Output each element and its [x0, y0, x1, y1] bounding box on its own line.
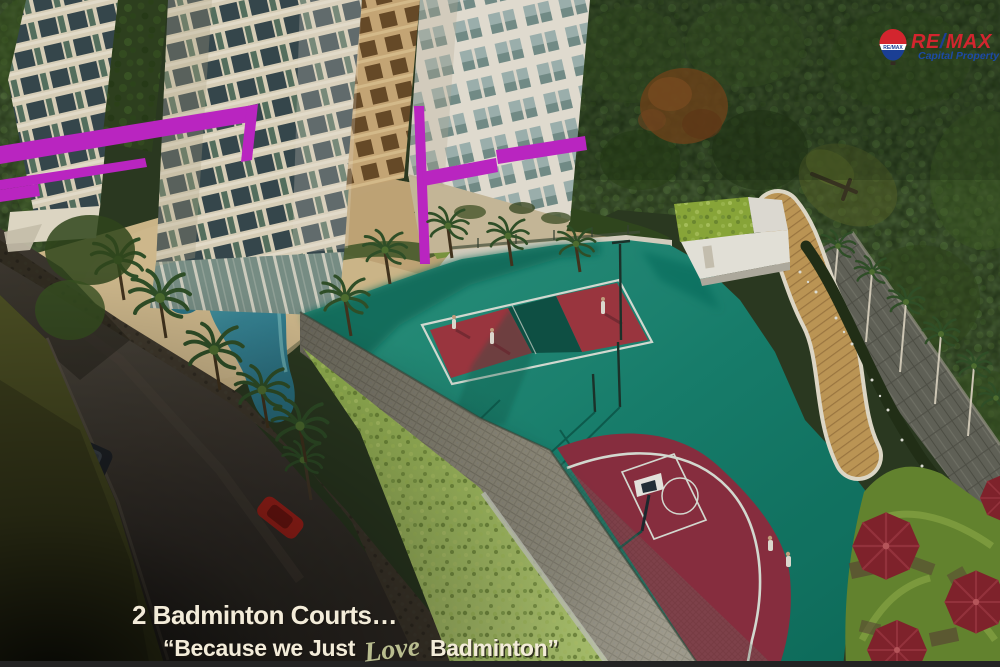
svg-text:“Because we Just: “Because we Just: [163, 635, 356, 661]
svg-text:Capital Property: Capital Property: [918, 50, 1000, 62]
svg-text:Badminton”: Badminton”: [430, 635, 559, 661]
svg-text:RE/MAX: RE/MAX: [883, 45, 903, 51]
svg-text:Love: Love: [361, 631, 421, 667]
svg-text:2 Badminton Courts…: 2 Badminton Courts…: [132, 600, 397, 630]
